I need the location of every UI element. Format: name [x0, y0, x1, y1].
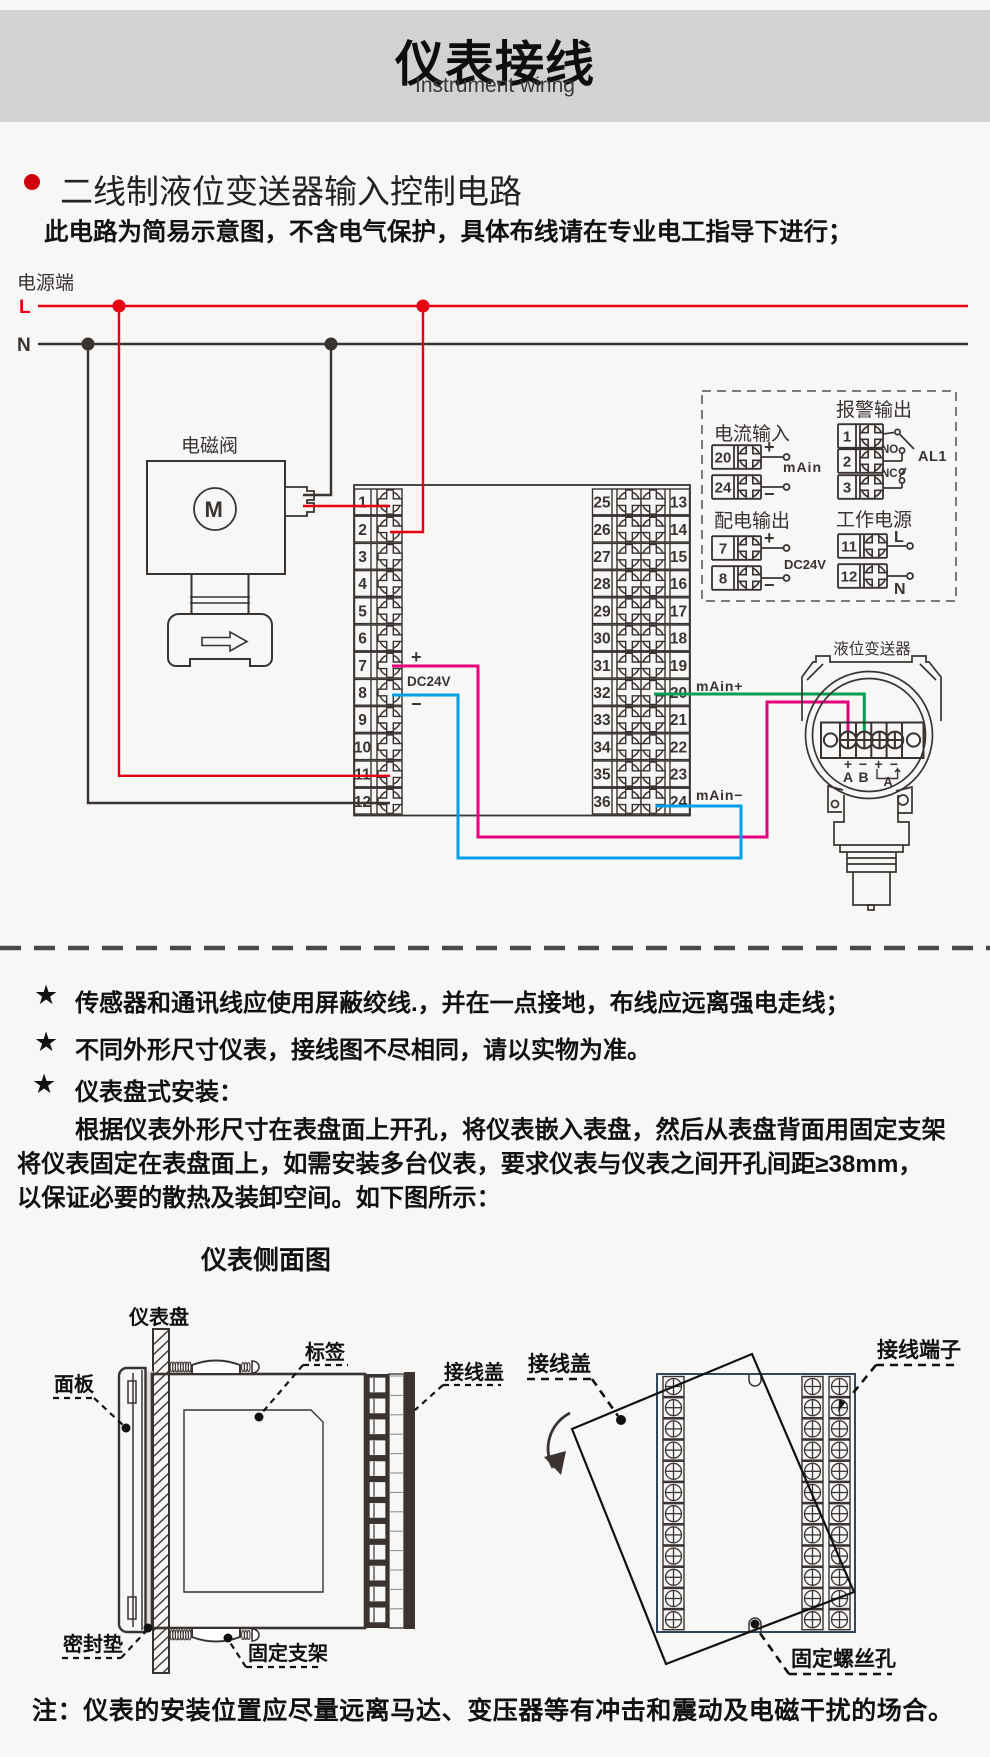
- svg-text:mAin+: mAin+: [696, 678, 743, 694]
- svg-text:液位变送器: 液位变送器: [833, 640, 911, 658]
- svg-text:24: 24: [670, 794, 688, 811]
- svg-text:20: 20: [715, 450, 732, 467]
- svg-text:18: 18: [670, 631, 688, 648]
- svg-text:14: 14: [670, 522, 688, 539]
- svg-text:25: 25: [593, 495, 611, 512]
- svg-text:DC24V: DC24V: [407, 674, 451, 689]
- svg-text:11: 11: [841, 539, 857, 556]
- svg-text:AL1: AL1: [918, 449, 947, 465]
- svg-text:接线端子: 接线端子: [877, 1338, 961, 1362]
- svg-text:24: 24: [715, 480, 732, 497]
- svg-text:DC24V: DC24V: [784, 557, 826, 572]
- svg-text:1: 1: [358, 495, 367, 512]
- svg-text:22: 22: [670, 739, 687, 756]
- svg-text:NO: NO: [881, 444, 898, 456]
- svg-text:3: 3: [843, 480, 851, 497]
- svg-text:M: M: [205, 497, 223, 522]
- svg-text:32: 32: [593, 685, 610, 702]
- svg-text:10: 10: [354, 739, 371, 756]
- svg-text:3: 3: [358, 549, 367, 566]
- svg-text:N: N: [17, 335, 31, 356]
- svg-text:8: 8: [358, 685, 367, 702]
- svg-text:A: A: [883, 775, 892, 789]
- svg-text:固定支架: 固定支架: [248, 1641, 328, 1665]
- svg-text:−: −: [411, 694, 422, 714]
- svg-text:21: 21: [670, 712, 688, 729]
- svg-text:报警输出: 报警输出: [836, 399, 912, 421]
- svg-text:接线盖: 接线盖: [528, 1352, 591, 1376]
- svg-text:面板: 面板: [54, 1372, 95, 1396]
- svg-text:配电输出: 配电输出: [714, 510, 790, 532]
- svg-text:7: 7: [358, 658, 367, 675]
- svg-text:26: 26: [593, 522, 611, 539]
- svg-text:B: B: [858, 769, 868, 785]
- svg-text:4: 4: [358, 576, 367, 593]
- svg-text:1: 1: [843, 429, 851, 446]
- svg-text:17: 17: [670, 603, 687, 620]
- svg-text:29: 29: [593, 603, 611, 620]
- svg-text:A: A: [843, 769, 853, 785]
- svg-text:+: +: [764, 437, 775, 457]
- svg-text:2: 2: [843, 454, 851, 471]
- svg-text:mAin: mAin: [783, 459, 822, 475]
- svg-text:固定螺丝孔: 固定螺丝孔: [791, 1647, 896, 1671]
- svg-text:L: L: [19, 297, 31, 318]
- svg-text:N: N: [894, 581, 906, 598]
- svg-text:12: 12: [841, 569, 858, 586]
- svg-text:5: 5: [358, 603, 367, 620]
- svg-text:电磁阀: 电磁阀: [181, 435, 238, 457]
- svg-text:电源端: 电源端: [17, 272, 74, 294]
- svg-text:+: +: [875, 756, 883, 772]
- svg-text:NC: NC: [881, 468, 898, 480]
- svg-text:9: 9: [358, 712, 367, 729]
- svg-text:31: 31: [593, 658, 611, 675]
- svg-text:23: 23: [670, 767, 688, 784]
- svg-text:34: 34: [593, 739, 611, 756]
- svg-text:仪表盘: 仪表盘: [128, 1305, 189, 1329]
- svg-text:密封垫: 密封垫: [63, 1632, 123, 1656]
- svg-text:标签: 标签: [305, 1340, 346, 1364]
- svg-text:35: 35: [593, 767, 611, 784]
- svg-text:8: 8: [719, 571, 727, 588]
- svg-text:工作电源: 工作电源: [836, 509, 912, 531]
- svg-text:30: 30: [593, 631, 610, 648]
- svg-text:mAin−: mAin−: [696, 787, 743, 803]
- svg-text:接线盖: 接线盖: [444, 1360, 504, 1384]
- svg-text:33: 33: [593, 712, 611, 729]
- svg-text:2: 2: [358, 522, 367, 539]
- svg-text:28: 28: [593, 576, 611, 593]
- svg-text:L: L: [894, 529, 904, 546]
- svg-text:6: 6: [358, 631, 367, 648]
- svg-text:7: 7: [719, 541, 727, 558]
- svg-text:19: 19: [670, 658, 688, 675]
- svg-text:36: 36: [593, 794, 611, 811]
- svg-text:27: 27: [593, 549, 610, 566]
- svg-text:电流输入: 电流输入: [714, 423, 790, 445]
- svg-text:+: +: [764, 528, 775, 548]
- svg-text:16: 16: [670, 576, 688, 593]
- svg-text:+: +: [411, 647, 422, 667]
- svg-text:15: 15: [670, 549, 688, 566]
- svg-text:13: 13: [670, 495, 688, 512]
